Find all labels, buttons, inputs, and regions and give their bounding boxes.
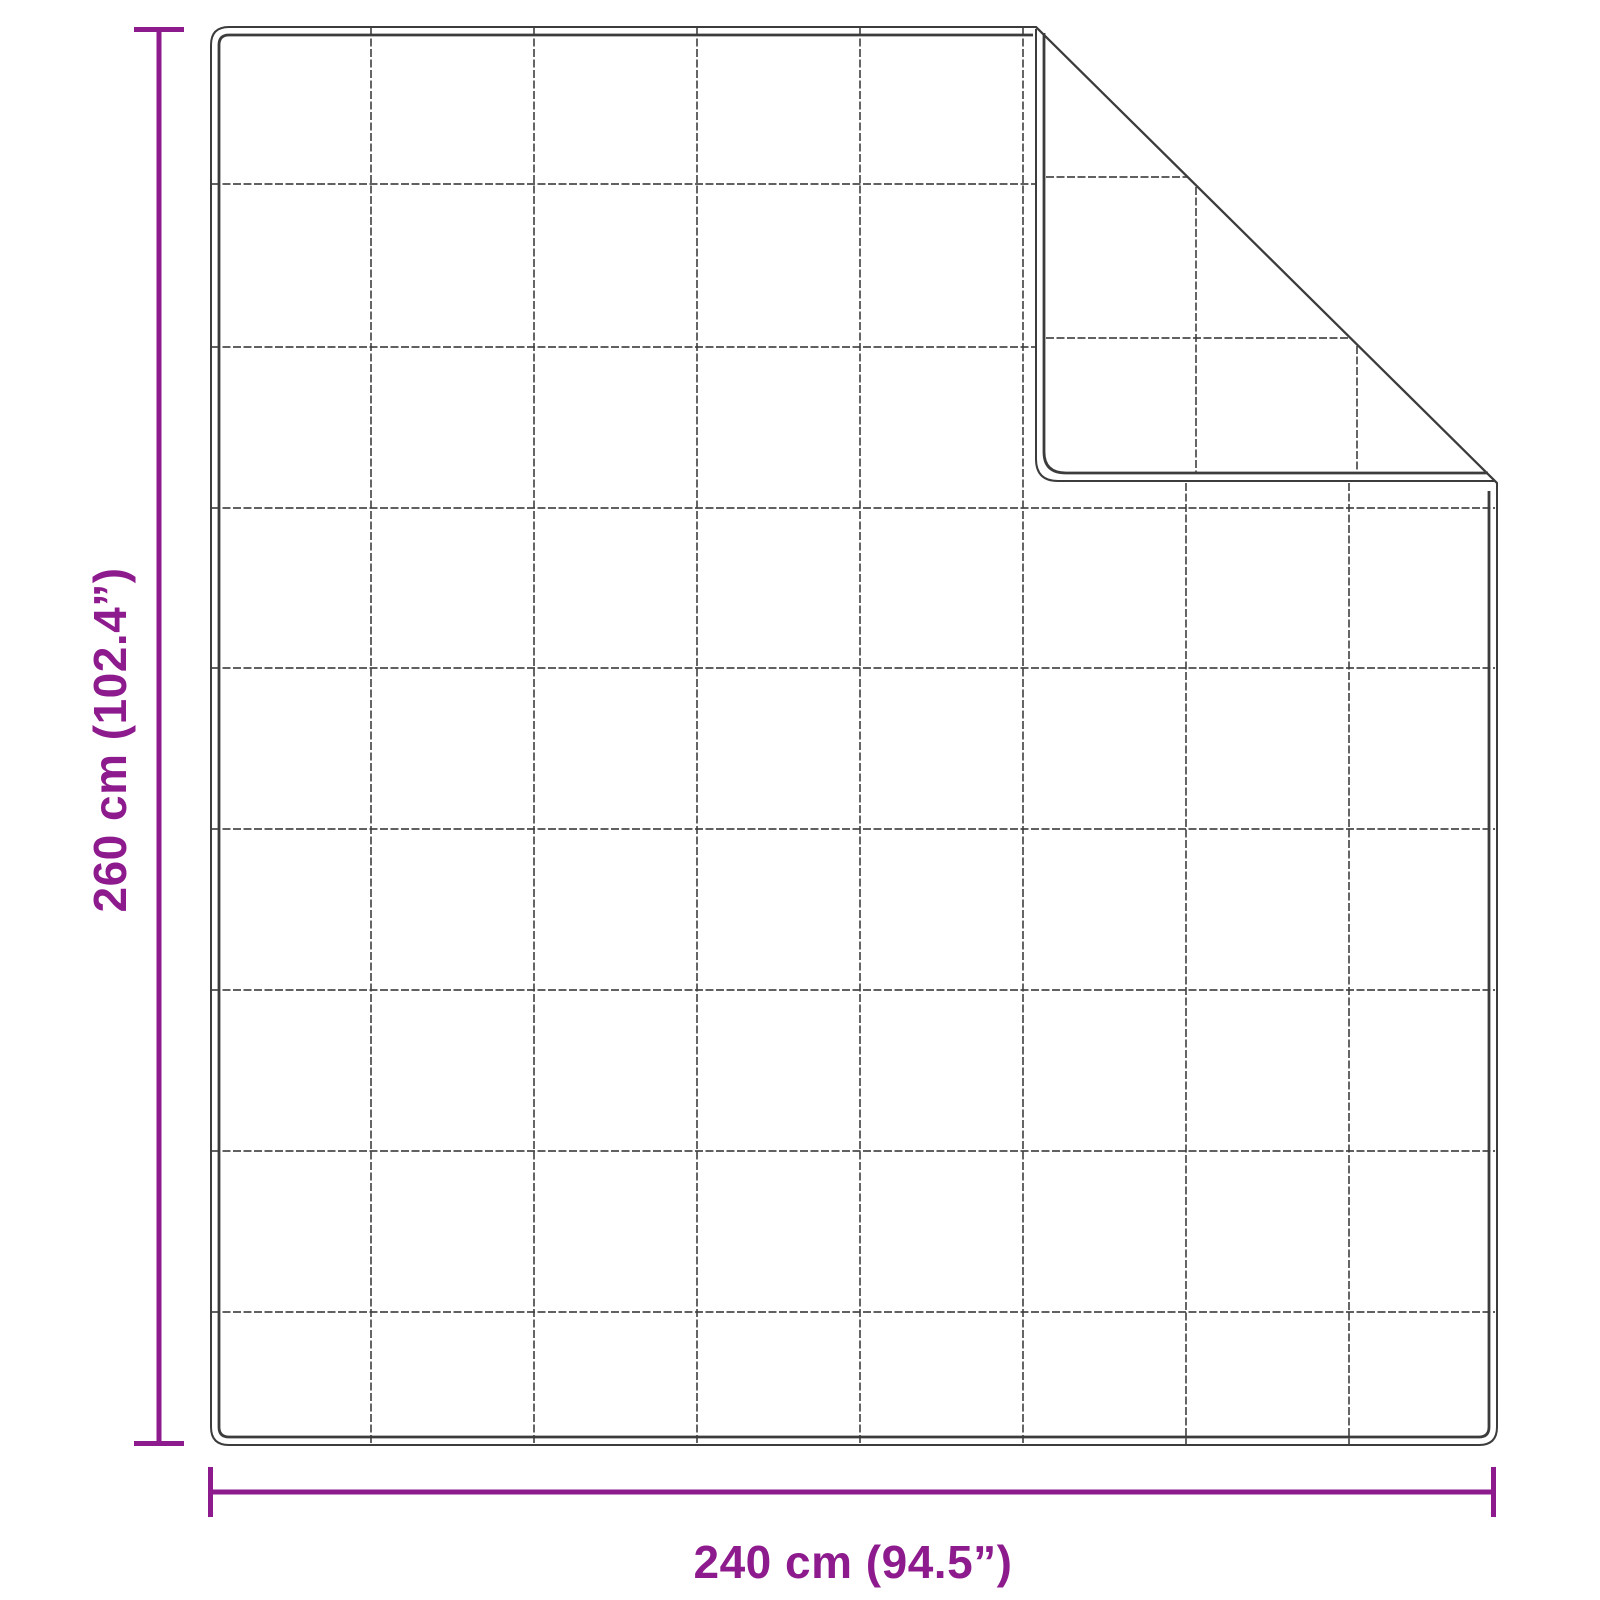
width-dimension: 240 cm (94.5”) <box>211 1467 1494 1588</box>
flap-quilt-grid <box>1046 177 1357 472</box>
blanket-outline <box>211 27 1497 1445</box>
product-dimension-diagram: 260 cm (102.4”) 240 cm (94.5”) <box>0 0 1600 1600</box>
fold-crease-line <box>1036 27 1497 483</box>
folded-corner-flap <box>1036 27 1497 483</box>
blanket-hem-stitching <box>219 35 1489 1437</box>
blanket-dimension-illustration: 260 cm (102.4”) 240 cm (94.5”) <box>0 0 1600 1600</box>
height-dimension-label: 260 cm (102.4”) <box>84 567 136 912</box>
width-dimension-label: 240 cm (94.5”) <box>694 1536 1013 1588</box>
quilt-grid <box>212 28 1495 1444</box>
blanket-body <box>211 27 1497 1445</box>
height-dimension: 260 cm (102.4”) <box>84 30 184 1444</box>
